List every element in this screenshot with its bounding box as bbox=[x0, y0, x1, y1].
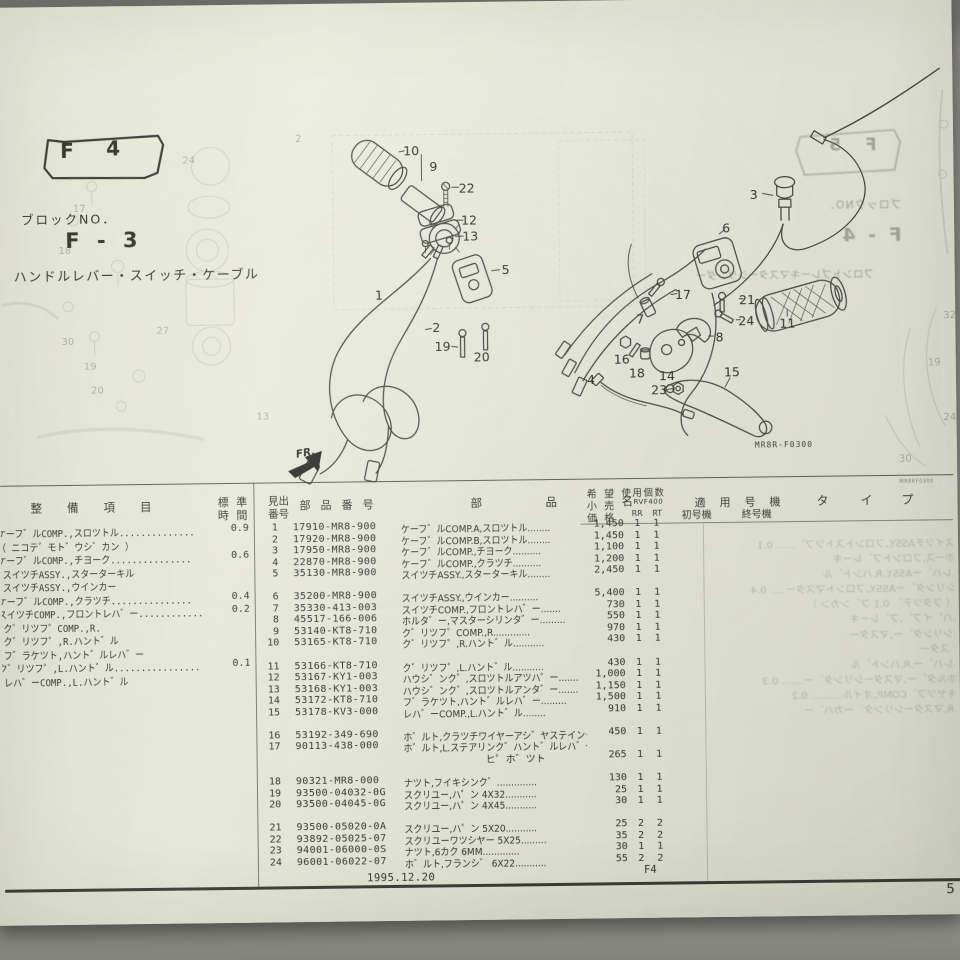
part-ref-no: 12 bbox=[251, 672, 280, 683]
table-top-rule bbox=[0, 474, 953, 487]
block-no-label: ブロックNO． bbox=[21, 208, 117, 228]
part-qty-rr: 1 bbox=[630, 518, 645, 529]
section-tab-number: 4 bbox=[106, 136, 120, 160]
part-number: 53172-KT8-710 bbox=[295, 694, 379, 706]
part-price: 550 bbox=[558, 611, 625, 623]
part-qty-rt: 2 bbox=[652, 818, 667, 829]
ghost-number: 19 bbox=[84, 362, 97, 373]
part-price: 25 bbox=[560, 784, 627, 796]
part-qty-rt: 1 bbox=[650, 599, 665, 610]
part-ref-no: 5 bbox=[249, 569, 278, 580]
callout-7: 7 bbox=[636, 311, 644, 326]
part-ref-no: 20 bbox=[252, 800, 281, 811]
part-price: 25 bbox=[560, 818, 627, 830]
part-qty-rr: 1 bbox=[631, 587, 646, 598]
film-code: MR8RF0300 bbox=[899, 478, 934, 484]
part-price: 55 bbox=[561, 853, 628, 865]
part-number: 22870-MR8-900 bbox=[293, 556, 377, 568]
part-number: 45517-166-006 bbox=[294, 614, 378, 626]
part-qty-rr: 1 bbox=[633, 783, 648, 794]
catalog-page: 2171824273019201332192430 bbox=[0, 0, 960, 926]
section-tab bbox=[38, 131, 169, 185]
part-qty-rt: 1 bbox=[651, 726, 666, 737]
part-qty-rt: 1 bbox=[649, 529, 664, 540]
part-price: 730 bbox=[558, 599, 625, 611]
part-price: 450 bbox=[559, 726, 626, 738]
header-part-name-1: 部 bbox=[470, 495, 482, 511]
part-qty-rr: 1 bbox=[634, 841, 649, 852]
part-number: 96001-06022-07 bbox=[297, 856, 387, 868]
ghost-number: 32 bbox=[943, 310, 956, 321]
callout-18: 18 bbox=[629, 365, 645, 380]
callout-9: 9 bbox=[429, 159, 437, 174]
part-number: 53167-KY1-003 bbox=[295, 671, 379, 683]
table-bottom-rule bbox=[5, 878, 960, 892]
part-ref-no: 3 bbox=[249, 545, 278, 556]
part-number: 53168-KY1-003 bbox=[295, 683, 379, 695]
part-price: 265 bbox=[560, 749, 627, 761]
part-ref-no: 18 bbox=[252, 776, 281, 787]
part-qty-rr: 1 bbox=[632, 691, 647, 702]
callout-8: 8 bbox=[715, 329, 723, 344]
part-qty-rt: 1 bbox=[651, 691, 666, 702]
part-price: 430 bbox=[558, 657, 625, 669]
part-ref-no: 9 bbox=[250, 626, 279, 637]
part-qty-rr: 1 bbox=[631, 633, 646, 644]
part-qty-rt: 1 bbox=[650, 610, 665, 621]
part-ref-no: 6 bbox=[250, 592, 279, 603]
ghost-number: 20 bbox=[91, 386, 104, 397]
part-qty-rt: 1 bbox=[653, 841, 668, 852]
callout-16: 16 bbox=[614, 352, 630, 367]
part-qty-rr: 2 bbox=[633, 818, 648, 829]
page-content: 2171824273019201332192430 bbox=[0, 0, 960, 926]
part-ref-no: 17 bbox=[251, 742, 280, 753]
ghost-title: フロントブレーキマスターシリンダー bbox=[696, 266, 874, 283]
page-title: ハンドルレバー・スイッチ・ケーブル bbox=[14, 264, 260, 286]
header-maintenance-item: 整備項目 bbox=[30, 499, 176, 517]
ghost-block-code: F - 4 bbox=[839, 224, 902, 247]
part-ref-no: 24 bbox=[253, 857, 282, 868]
part-ref-no: 23 bbox=[253, 846, 282, 857]
part-price: 30 bbox=[561, 841, 628, 853]
part-qty-rt: 1 bbox=[650, 633, 665, 644]
part-qty-rr: 1 bbox=[631, 610, 646, 621]
catalog-photo: 2171824273019201332192430 bbox=[0, 0, 960, 960]
part-price: 5,400 bbox=[558, 587, 625, 599]
footer-date: 1995.12.20 bbox=[367, 871, 435, 884]
part-qty-rt: 1 bbox=[649, 564, 664, 575]
callout-14: 14 bbox=[659, 368, 675, 383]
part-number: 35330-413-003 bbox=[294, 602, 378, 614]
callout-21: 21 bbox=[739, 292, 755, 307]
parts-list: 1 17910-MR8-900 ケーフ゛ルCOMP.A,スロツトル.......… bbox=[1, 514, 960, 872]
part-price: 910 bbox=[559, 703, 626, 715]
part-ref-no: 8 bbox=[250, 615, 279, 626]
callout-20: 20 bbox=[474, 349, 490, 364]
callout-13: 13 bbox=[462, 228, 478, 243]
part-number: 17950-MR8-900 bbox=[293, 544, 377, 556]
part-qty-rt: 1 bbox=[652, 783, 667, 794]
part-qty-rr: 1 bbox=[630, 529, 645, 540]
block-code: F - 3 bbox=[65, 228, 143, 253]
part-price: 130 bbox=[560, 772, 627, 784]
part-price: 30 bbox=[560, 795, 627, 807]
part-price: 1,450 bbox=[557, 530, 624, 542]
ghost-number: 24 bbox=[182, 155, 195, 166]
part-price: 1,200 bbox=[557, 553, 624, 565]
callout-12: 12 bbox=[461, 212, 477, 227]
part-qty-rt: 1 bbox=[650, 622, 665, 633]
part-ref-no: 19 bbox=[252, 788, 281, 799]
part-ref-no: 15 bbox=[251, 707, 280, 718]
callout-10: 10 bbox=[403, 143, 419, 158]
part-qty-rr: 1 bbox=[632, 726, 647, 737]
header-qty-rr: RR bbox=[630, 509, 645, 518]
part-ref-no: 13 bbox=[251, 684, 280, 695]
part-qty-rt: 1 bbox=[651, 702, 666, 713]
part-number: 35130-MR8-900 bbox=[293, 567, 377, 579]
part-number: 17910-MR8-900 bbox=[293, 521, 377, 533]
part-number: 93892-05025-07 bbox=[297, 833, 387, 845]
part-qty-rt: 1 bbox=[651, 679, 666, 690]
part-qty-rr: 1 bbox=[633, 749, 648, 760]
part-qty-rt: 2 bbox=[653, 853, 668, 864]
part-number: 53140-KT8-710 bbox=[294, 625, 378, 637]
part-qty-rt: 1 bbox=[649, 518, 664, 529]
part-ref-no: 14 bbox=[251, 696, 280, 707]
part-qty-rr: 1 bbox=[630, 553, 645, 564]
part-number: 17920-MR8-900 bbox=[293, 533, 377, 545]
part-qty-rt: 1 bbox=[652, 749, 667, 760]
callout-23: 23 bbox=[651, 382, 667, 397]
header-std-time-2: 時 間 bbox=[213, 507, 255, 524]
part-number: 53178-KV3-000 bbox=[295, 706, 379, 718]
part-qty-rt: 1 bbox=[649, 541, 664, 552]
part-price: 1,000 bbox=[559, 668, 626, 680]
part-qty-rt: 2 bbox=[653, 829, 668, 840]
part-ref-no: 11 bbox=[250, 661, 279, 672]
part-qty-rr: 1 bbox=[631, 622, 646, 633]
part-number: 53192-349-690 bbox=[295, 729, 379, 741]
part-number: 93500-05020-0A bbox=[296, 821, 386, 833]
figure-code: MR8R-F0300 bbox=[755, 440, 813, 450]
part-number: 35200-MR8-900 bbox=[294, 590, 378, 602]
callout-2: 2 bbox=[432, 320, 440, 335]
ghost-number: 19 bbox=[928, 357, 941, 368]
part-qty-rt: 1 bbox=[651, 668, 666, 679]
part-price: 35 bbox=[561, 830, 628, 842]
header-type-2: イ bbox=[860, 491, 872, 508]
part-qty-rr: 1 bbox=[632, 703, 647, 714]
part-ref-no: 10 bbox=[250, 638, 279, 649]
part-qty-rr: 1 bbox=[631, 656, 646, 667]
part-qty-rr: 1 bbox=[633, 772, 648, 783]
part-number: 90113-438-000 bbox=[295, 741, 379, 753]
footer-block-code: F4 bbox=[644, 864, 657, 876]
part-price: 970 bbox=[558, 622, 625, 634]
part-ref-no: 1 bbox=[249, 522, 278, 533]
part-qty-rt: 1 bbox=[650, 587, 665, 598]
callout-24: 24 bbox=[738, 313, 754, 328]
callout-17: 17 bbox=[675, 287, 691, 302]
part-price: 2,450 bbox=[557, 564, 624, 576]
part-ref-no: 16 bbox=[251, 730, 280, 741]
part-number: 90321-MR8-000 bbox=[296, 775, 380, 787]
callout-15: 15 bbox=[724, 364, 740, 379]
part-ref-no: 7 bbox=[250, 603, 279, 614]
callout-11: 11 bbox=[779, 316, 795, 331]
part-number: 93500-04032-0G bbox=[296, 787, 386, 799]
header-qty-rt: RT bbox=[650, 509, 665, 518]
part-ref-no: 21 bbox=[252, 823, 281, 834]
ghost-number: 13 bbox=[256, 411, 269, 422]
part-qty-rr: 1 bbox=[631, 599, 646, 610]
ghost-number: 30 bbox=[61, 337, 74, 348]
callout-3: 3 bbox=[750, 187, 758, 202]
callout-5: 5 bbox=[502, 262, 510, 277]
page-number: 5 bbox=[946, 881, 955, 897]
ghost-number: 30 bbox=[899, 454, 912, 465]
fr-label: FR. bbox=[295, 445, 316, 460]
callout-4: 4 bbox=[587, 372, 595, 387]
ghost-block-no: ブロックNO． bbox=[823, 196, 902, 213]
part-name-continued: ヒ゜ホ゛ツト bbox=[404, 750, 546, 767]
part-price: 1,500 bbox=[559, 691, 626, 703]
part-price: 430 bbox=[558, 634, 625, 646]
part-ref-no: 22 bbox=[253, 834, 282, 845]
header-part-name-2: 品 bbox=[545, 494, 557, 510]
part-qty-rr: 1 bbox=[632, 668, 647, 679]
ghost-number: 2 bbox=[295, 134, 302, 145]
part-number: 53165-KT8-710 bbox=[294, 637, 378, 649]
part-ref-no: 2 bbox=[249, 534, 278, 545]
section-tab-letter: F bbox=[60, 139, 75, 163]
part-qty-rr: 2 bbox=[634, 830, 649, 841]
part-qty-rr: 1 bbox=[630, 564, 645, 575]
callout-19: 19 bbox=[435, 339, 451, 354]
part-qty-rt: 1 bbox=[652, 795, 667, 806]
header-ref-no-2: 番号 bbox=[263, 506, 295, 521]
header-model: RVF400 bbox=[633, 498, 663, 506]
header-type-3: プ bbox=[901, 491, 913, 508]
ghost-number: 24 bbox=[943, 412, 956, 423]
part-qty-rt: 1 bbox=[649, 552, 664, 563]
part-number: 53166-KT8-710 bbox=[294, 660, 378, 672]
part-number: 94001-06000-0S bbox=[297, 844, 387, 856]
ghost-number: 27 bbox=[156, 326, 169, 337]
part-number: 93500-04045-0G bbox=[296, 798, 386, 810]
part-qty-rt: 1 bbox=[650, 656, 665, 667]
part-qty-rr: 1 bbox=[632, 680, 647, 691]
part-qty-rr: 1 bbox=[633, 795, 648, 806]
part-qty-rt: 1 bbox=[652, 772, 667, 783]
part-price: 1,450 bbox=[557, 518, 624, 530]
callout-22: 22 bbox=[459, 180, 475, 195]
part-qty-rr: 2 bbox=[634, 853, 649, 864]
ghost-tab-label: F 5 bbox=[820, 135, 877, 156]
part-qty-rr: 1 bbox=[630, 541, 645, 552]
header-part-number: 部品番号 bbox=[299, 496, 383, 513]
part-price: 1,100 bbox=[557, 541, 624, 553]
part-price: 1,150 bbox=[559, 680, 626, 692]
part-ref-no: 4 bbox=[249, 557, 278, 568]
callout-6: 6 bbox=[722, 220, 730, 235]
callout-1: 1 bbox=[375, 288, 383, 303]
header-type-1: タ bbox=[816, 492, 828, 509]
